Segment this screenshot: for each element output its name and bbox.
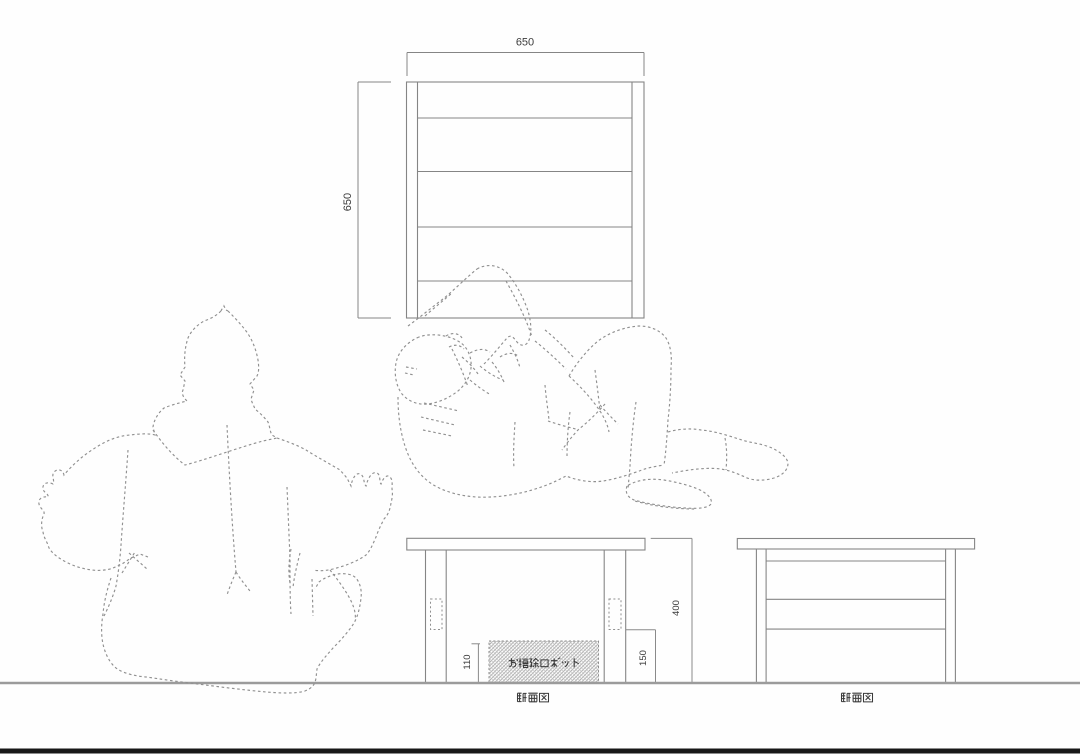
svg-text:150: 150 bbox=[638, 650, 649, 666]
svg-text:650: 650 bbox=[342, 193, 354, 211]
svg-text:650: 650 bbox=[516, 37, 534, 49]
svg-text:400: 400 bbox=[671, 600, 682, 616]
svg-text:110: 110 bbox=[462, 654, 473, 669]
